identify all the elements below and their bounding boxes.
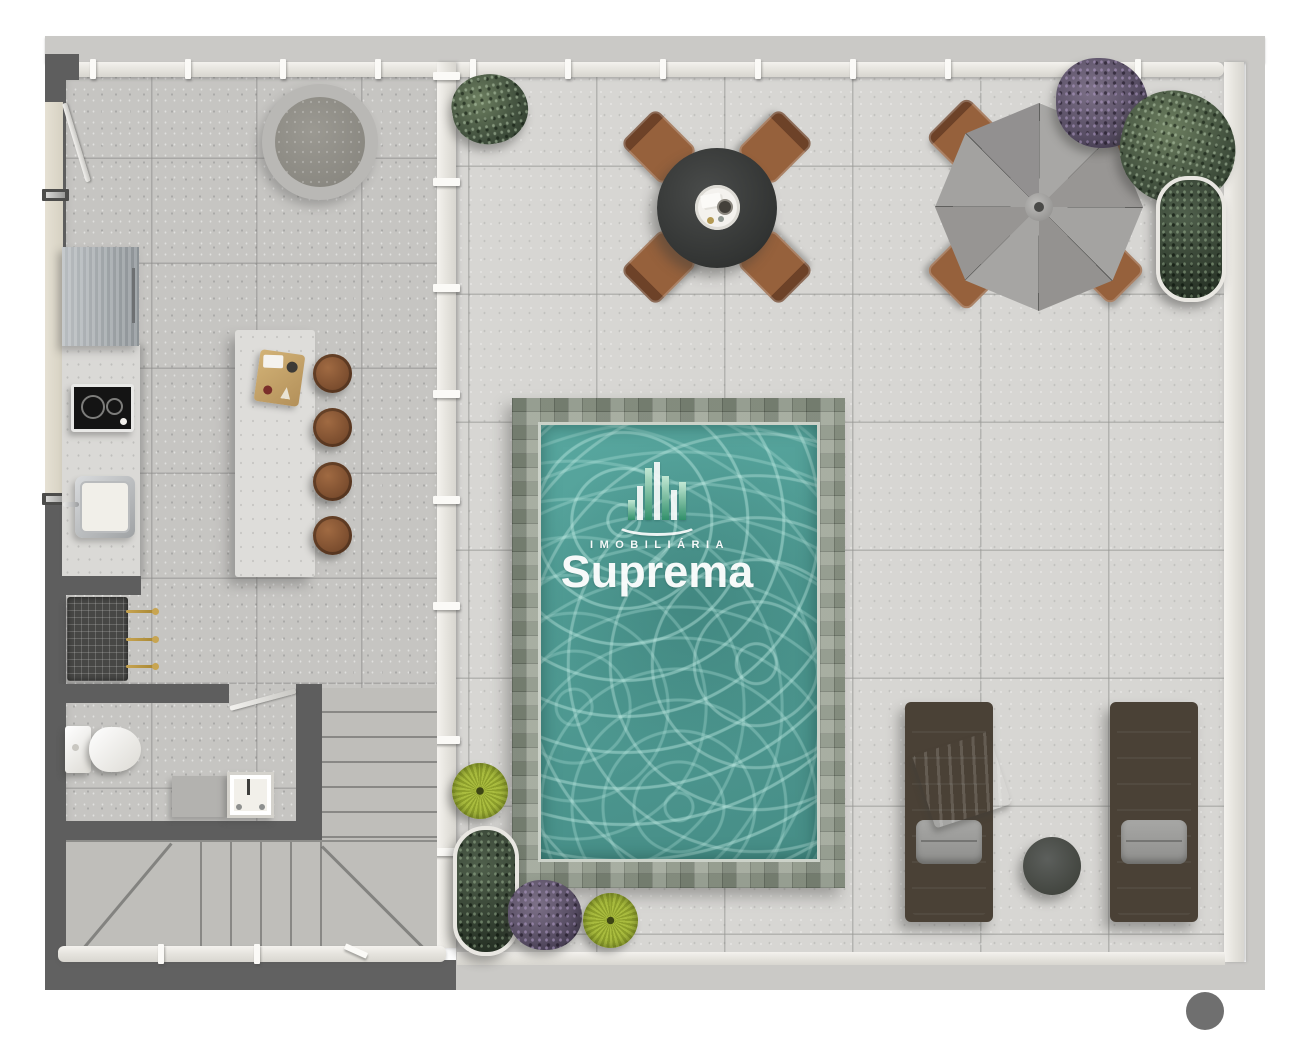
divider-post — [433, 602, 460, 610]
railing-post — [90, 59, 96, 79]
lounger-pillow — [1121, 820, 1187, 864]
railing-post — [755, 59, 761, 79]
parapet-band-bottom — [456, 962, 1265, 990]
brand-word-main: Suprema — [561, 549, 754, 594]
fridge-handle — [132, 268, 135, 323]
cutting-board — [254, 349, 306, 407]
bar-stool — [313, 462, 352, 501]
railing-post — [565, 59, 571, 79]
floor-plan-render: IMOBILIÁRIA Suprema — [0, 0, 1312, 1050]
carousel-dot[interactable] — [1186, 992, 1224, 1030]
bar-stool — [313, 408, 352, 447]
snack-item — [280, 386, 292, 399]
railing-post — [185, 59, 191, 79]
divider-post — [433, 72, 460, 80]
bar-stool — [313, 354, 352, 393]
bathroom-wall-right — [296, 684, 322, 840]
small-bowl — [286, 361, 298, 373]
window-strip-left — [45, 200, 63, 496]
grass-tuft — [452, 763, 508, 819]
lounger-cushion — [1117, 709, 1191, 915]
burner-large — [81, 395, 105, 419]
wall-corner-top-left — [45, 54, 79, 80]
sink-faucet — [63, 502, 79, 507]
skewer — [126, 638, 154, 641]
round-table — [262, 84, 378, 200]
divider-post — [433, 178, 460, 186]
railing-post — [660, 59, 666, 79]
fridge-cabinet — [62, 247, 139, 346]
side-table — [1023, 837, 1081, 895]
snack-item — [263, 385, 273, 395]
glass-divider-railing — [437, 62, 456, 948]
bathroom-sink — [227, 772, 274, 818]
divider-post — [433, 736, 460, 744]
parapet-band-top — [45, 36, 1265, 62]
bathroom-wall-bottom — [45, 821, 322, 840]
oval-planter-right — [1156, 176, 1226, 302]
burner-small — [106, 398, 123, 415]
wall-bottom-left — [45, 960, 456, 990]
cooktop-knob — [120, 418, 127, 425]
oval-planter-left — [453, 826, 519, 956]
tap-handle — [259, 804, 265, 810]
glass — [707, 217, 714, 224]
bathroom-vanity — [172, 776, 228, 817]
railing-post — [280, 59, 286, 79]
cooktop — [71, 384, 134, 432]
sink-basin — [80, 481, 130, 533]
divider-post — [433, 496, 460, 504]
railing-post — [158, 944, 164, 964]
purple-shrub-small — [508, 880, 582, 950]
divider-post — [433, 390, 460, 398]
serving-tray — [695, 185, 740, 230]
lounger-pillow — [916, 820, 982, 864]
railing-post — [945, 59, 951, 79]
glass-railing-bottom-left — [58, 946, 446, 962]
railing-post — [850, 59, 856, 79]
sun-lounger-right — [1110, 702, 1198, 922]
window-mullion — [42, 189, 69, 201]
logo-swoosh — [615, 512, 699, 536]
bowl — [717, 199, 733, 215]
bar-stool — [313, 516, 352, 555]
glass-railing-top — [64, 62, 1224, 77]
parapet-band-right — [1246, 36, 1265, 990]
grass-tuft — [583, 893, 638, 948]
toilet-flush-button — [72, 744, 79, 751]
entry-door-opening — [45, 102, 63, 192]
barbecue-grill — [67, 597, 128, 681]
skewer — [126, 610, 154, 613]
sink-tap — [247, 779, 250, 795]
stair-flight-upper — [322, 688, 437, 840]
glass — [718, 216, 724, 222]
glass-railing-right — [1224, 62, 1244, 962]
stair-winder-line — [321, 845, 436, 960]
tap-handle — [236, 804, 242, 810]
railing-post — [254, 944, 260, 964]
napkin — [263, 355, 283, 369]
bathroom-wall-top — [45, 684, 229, 703]
kitchen-counter — [62, 345, 140, 578]
umbrella-pole-knob — [1034, 202, 1044, 212]
dining-table — [657, 148, 777, 268]
railing-post — [375, 59, 381, 79]
wall-stub-counter — [45, 576, 141, 595]
brand-watermark: IMOBILIÁRIA Suprema — [577, 462, 737, 594]
kitchen-sink — [75, 476, 135, 538]
divider-post — [433, 284, 460, 292]
toilet-bowl — [89, 727, 141, 772]
terrace-edge-strip-bottom — [457, 952, 1225, 965]
stair-winder-line — [74, 843, 173, 960]
skewer — [126, 665, 154, 668]
